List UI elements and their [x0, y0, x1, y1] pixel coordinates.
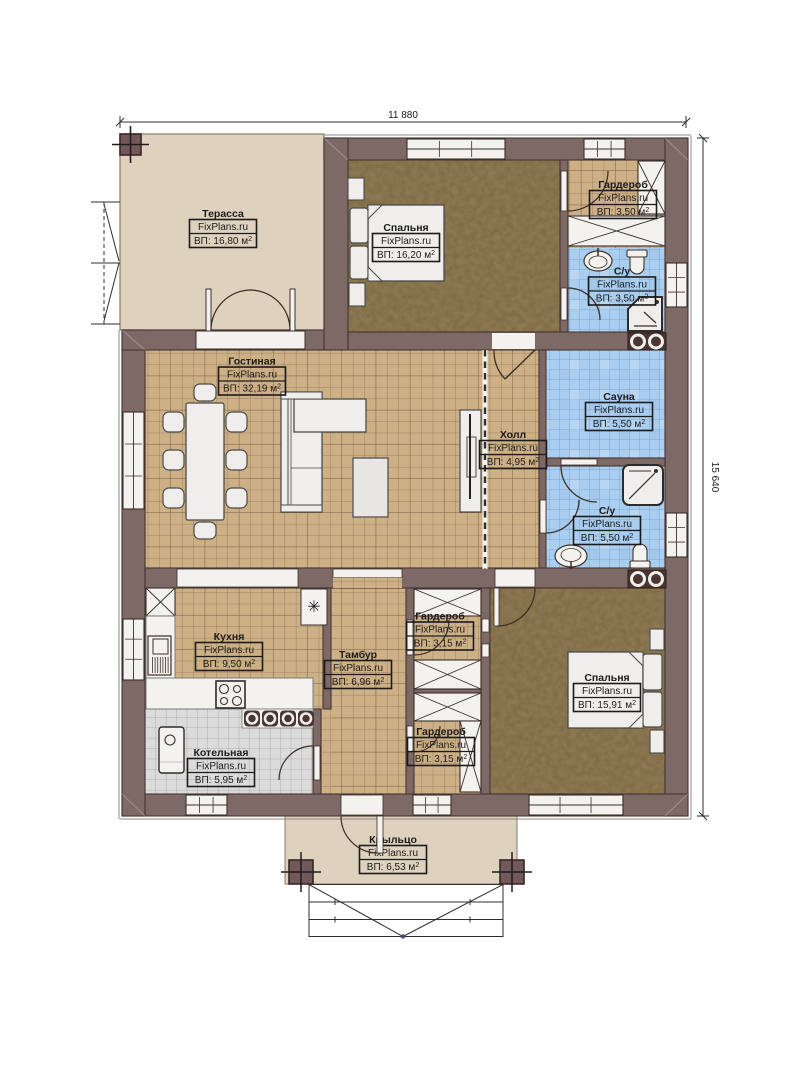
svg-text:ВП: 3,50 м2: ВП: 3,50 м2: [596, 294, 649, 305]
svg-text:ВП: 3,50 м2: ВП: 3,50 м2: [597, 207, 650, 218]
svg-text:FixPlans.ru: FixPlans.ru: [597, 280, 647, 291]
svg-text:ВП: 15,91 м2: ВП: 15,91 м2: [578, 700, 636, 711]
svg-text:ВП: 5,95 м2: ВП: 5,95 м2: [195, 775, 248, 786]
svg-text:Холл: Холл: [500, 429, 526, 441]
svg-text:✳: ✳: [307, 599, 320, 616]
svg-text:ВП: 16,80 м2: ВП: 16,80 м2: [194, 236, 252, 247]
svg-text:С/у: С/у: [599, 505, 616, 517]
svg-text:ВП: 32,19 м2: ВП: 32,19 м2: [223, 384, 281, 395]
svg-text:Гардероб: Гардероб: [415, 611, 465, 623]
svg-text:ВП: 16,20 м2: ВП: 16,20 м2: [377, 250, 435, 261]
svg-text:FixPlans.ru: FixPlans.ru: [333, 663, 383, 674]
svg-text:ВП: 5,50 м2: ВП: 5,50 м2: [593, 419, 646, 430]
svg-text:Гардероб: Гардероб: [416, 726, 466, 738]
svg-text:FixPlans.ru: FixPlans.ru: [416, 740, 466, 751]
svg-text:Кухня: Кухня: [214, 631, 245, 643]
svg-text:Спальня: Спальня: [584, 672, 629, 684]
svg-text:Терасса: Терасса: [202, 208, 244, 220]
svg-text:11 880: 11 880: [388, 110, 418, 121]
svg-text:ВП: 5,50 м2: ВП: 5,50 м2: [581, 533, 634, 544]
svg-text:Тамбур: Тамбур: [339, 649, 377, 661]
svg-text:FixPlans.ru: FixPlans.ru: [204, 645, 254, 656]
svg-text:Спальня: Спальня: [383, 222, 428, 234]
svg-text:15 640: 15 640: [709, 462, 720, 493]
svg-text:FixPlans.ru: FixPlans.ru: [227, 370, 277, 381]
svg-text:Сауна: Сауна: [603, 391, 635, 403]
svg-text:FixPlans.ru: FixPlans.ru: [198, 222, 248, 233]
svg-text:FixPlans.ru: FixPlans.ru: [196, 761, 246, 772]
svg-text:ВП: 9,50 м2: ВП: 9,50 м2: [203, 659, 256, 670]
svg-text:Котельная: Котельная: [194, 747, 249, 759]
svg-text:FixPlans.ru: FixPlans.ru: [594, 405, 644, 416]
svg-text:ВП: 6,96 м2: ВП: 6,96 м2: [332, 677, 385, 688]
svg-text:ВП: 6,53 м2: ВП: 6,53 м2: [367, 862, 420, 873]
svg-text:ВП: 3,15 м2: ВП: 3,15 м2: [414, 639, 467, 650]
svg-text:FixPlans.ru: FixPlans.ru: [381, 236, 431, 247]
svg-text:FixPlans.ru: FixPlans.ru: [598, 193, 648, 204]
svg-text:Крыльцо: Крыльцо: [369, 834, 417, 846]
svg-text:ВП: 4,95 м2: ВП: 4,95 м2: [487, 457, 540, 468]
svg-text:Гардероб: Гардероб: [598, 179, 648, 191]
svg-text:FixPlans.ru: FixPlans.ru: [582, 519, 632, 530]
svg-text:Гостиная: Гостиная: [228, 356, 275, 368]
svg-text:ВП: 3,15 м2: ВП: 3,15 м2: [415, 754, 468, 765]
svg-text:FixPlans.ru: FixPlans.ru: [582, 686, 632, 697]
svg-text:FixPlans.ru: FixPlans.ru: [415, 625, 465, 636]
svg-text:С/у: С/у: [614, 266, 631, 278]
svg-text:FixPlans.ru: FixPlans.ru: [488, 443, 538, 454]
